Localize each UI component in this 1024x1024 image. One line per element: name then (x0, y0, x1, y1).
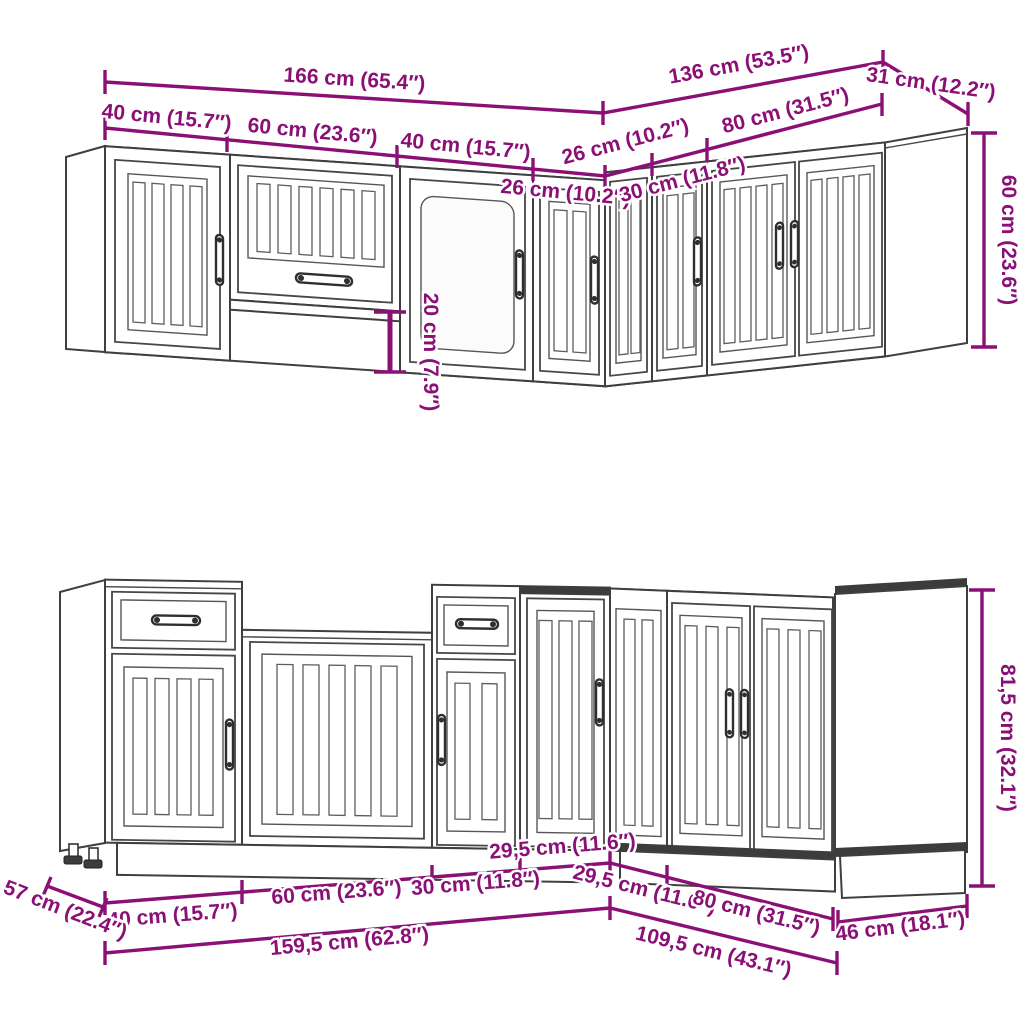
upper-height-label: 60 cm (23.6″) (997, 175, 1020, 305)
lower-total-left-label: 159,5 cm (62.8″) (269, 923, 430, 960)
kitchen-cabinet-dimension-diagram: 166 cm (65.4″) 40 cm (15.7″) 60 cm (23.6… (0, 0, 1024, 1024)
upper-total-right-label: 136 cm (53.5″) (667, 41, 811, 89)
upper-total-left-label: 166 cm (65.4″) (283, 64, 426, 96)
lower-height-label: 81,5 cm (32.1″) (996, 664, 1019, 812)
upper-right-end-panel (885, 128, 967, 357)
upper-left-side-panel (66, 146, 105, 352)
upper-bridge-drop-label: 20 cm (7.9″) (419, 293, 442, 412)
adjustable-foot (69, 844, 78, 857)
lower-seg-60-label: 60 cm (23.6″) (271, 876, 403, 909)
diagram-canvas: 166 cm (65.4″) 40 cm (15.7″) 60 cm (23.6… (0, 0, 1024, 1024)
lower-total-right-label: 109,5 cm (43.1″) (633, 922, 793, 982)
lower-left-side-panel (60, 580, 105, 851)
lower-right-run (610, 589, 835, 892)
lower-right-plinth-side (840, 850, 965, 898)
adjustable-foot (89, 848, 98, 861)
upper-seg-26b-label: 26 cm (10.2″) (559, 114, 691, 169)
lower-right-end-panel (835, 586, 967, 856)
upper-depth-label: 31 cm (12.2″) (865, 63, 997, 104)
